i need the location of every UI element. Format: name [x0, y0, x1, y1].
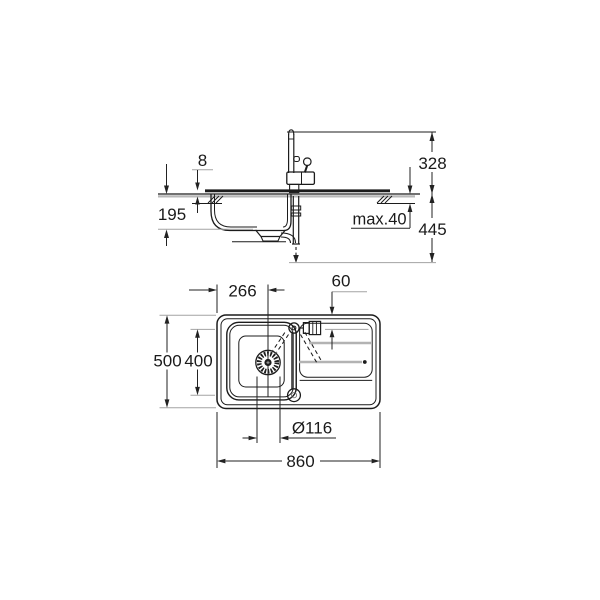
dim-label-860: 860 — [286, 452, 314, 471]
dimension-faucet-height: 328 — [418, 132, 446, 194]
faucet-side — [287, 130, 315, 193]
dim-label-266: 266 — [228, 282, 256, 301]
faucet-lever-knob — [304, 158, 311, 165]
dim-label-dia116: Ø116 — [292, 419, 332, 438]
dimension-install-depth: 445 — [418, 194, 446, 262]
drainboard-plan — [299, 323, 372, 380]
dim-label-500: 500 — [153, 352, 181, 371]
dimension-faucet-offset: 60 — [325, 272, 369, 350]
faucet-spout-outlet — [294, 157, 300, 162]
dimension-drain-offset: 266 — [189, 282, 285, 398]
dim-label-60: 60 — [332, 272, 351, 291]
dim-label-8: 8 — [198, 151, 207, 170]
sink-bowl-section — [211, 194, 291, 242]
plan-view: 266 60 500 — [152, 272, 380, 472]
dimension-bowl-depth: 195 — [158, 164, 186, 246]
dimension-drain-diameter: Ø116 — [243, 377, 337, 444]
sink-drawing-svg: 328 445 195 8 — [0, 0, 600, 600]
dimension-bowl-inner-depth: 400 — [184, 329, 215, 395]
dim-label-328: 328 — [418, 154, 446, 173]
dim-label-400: 400 — [184, 352, 212, 371]
dim-label-195: 195 — [158, 205, 186, 224]
dim-label-max40: max.40 — [353, 211, 407, 229]
dim-label-445: 445 — [418, 220, 446, 239]
side-view: 328 445 195 8 — [158, 130, 447, 263]
technical-drawing-canvas: 328 445 195 8 — [0, 0, 600, 600]
faucet-body — [287, 172, 315, 184]
drain-assembly-side — [232, 231, 286, 242]
supply-drop-dashed — [293, 247, 299, 263]
